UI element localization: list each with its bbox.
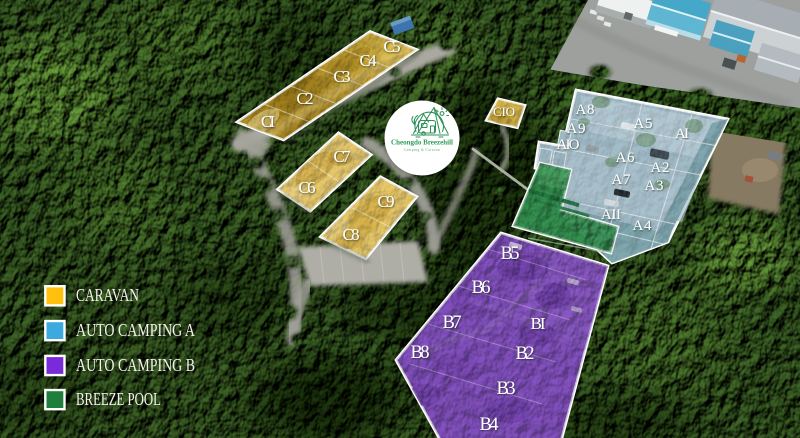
svg-text:C5: C5 <box>384 37 401 56</box>
svg-text:B2: B2 <box>516 344 535 364</box>
svg-text:B3: B3 <box>497 379 516 399</box>
svg-text:B5: B5 <box>501 244 520 264</box>
svg-text:A6: A6 <box>616 150 636 166</box>
svg-text:B6: B6 <box>472 278 491 298</box>
svg-text:Cheongdo Breezehill: Cheongdo Breezehill <box>391 139 453 147</box>
svg-text:C4: C4 <box>360 51 377 70</box>
svg-text:A2: A2 <box>651 160 670 176</box>
svg-text:CI: CI <box>261 112 275 131</box>
svg-text:A9: A9 <box>567 121 586 137</box>
svg-text:A3: A3 <box>645 178 664 194</box>
svg-text:AIO: AIO <box>557 137 580 153</box>
svg-text:B4: B4 <box>480 415 499 435</box>
svg-text:AUTO CAMPING B: AUTO CAMPING B <box>76 355 195 375</box>
svg-text:B8: B8 <box>411 343 430 363</box>
svg-text:C6: C6 <box>299 178 316 197</box>
svg-text:BREEZE POOL: BREEZE POOL <box>76 389 161 409</box>
svg-text:A5: A5 <box>634 116 653 132</box>
svg-text:Camping & Caravan: Camping & Caravan <box>404 148 441 152</box>
svg-text:CIO: CIO <box>493 104 515 119</box>
svg-text:C2: C2 <box>297 89 314 108</box>
svg-text:C9: C9 <box>378 192 395 211</box>
svg-text:B7: B7 <box>443 313 462 333</box>
svg-text:C3: C3 <box>334 67 351 86</box>
svg-text:C8: C8 <box>343 225 360 244</box>
svg-text:AI: AI <box>675 126 689 142</box>
svg-text:A8: A8 <box>576 102 595 118</box>
svg-text:AUTO CAMPING A: AUTO CAMPING A <box>76 320 195 340</box>
svg-text:AII: AII <box>601 207 621 223</box>
svg-text:CARAVAN: CARAVAN <box>76 285 139 305</box>
svg-text:A4: A4 <box>633 218 653 234</box>
svg-text:A7: A7 <box>612 172 632 188</box>
svg-text:BI: BI <box>531 314 546 333</box>
svg-text:C7: C7 <box>334 147 351 166</box>
